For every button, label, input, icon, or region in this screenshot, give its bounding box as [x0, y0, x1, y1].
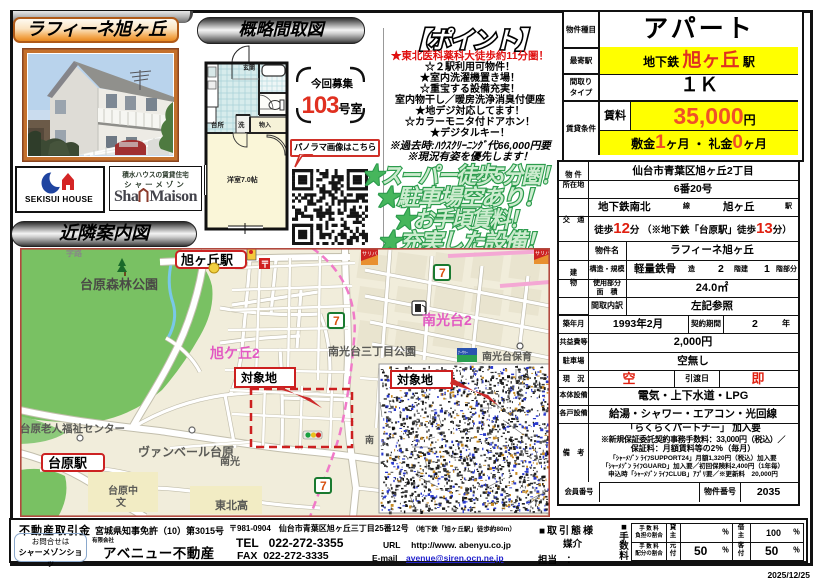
svg-text:台所: 台所: [211, 120, 225, 129]
svg-text:文: 文: [116, 496, 127, 509]
svg-text:台原森林公園: 台原森林公園: [80, 277, 158, 292]
svg-text:7: 7: [333, 314, 340, 328]
svg-text:ﾅｰｻﾘｰ: ﾅｰｻﾘｰ: [458, 350, 468, 355]
svg-text:サリバ: サリバ: [362, 252, 377, 258]
svg-text:南光台三丁目公園: 南光台三丁目公園: [328, 344, 416, 358]
svg-text:旭ヶ丘駅: 旭ヶ丘駅: [180, 253, 234, 268]
svg-text:南光: 南光: [220, 455, 240, 468]
svg-text:7: 7: [439, 266, 446, 280]
svg-text:玄関: 玄関: [243, 64, 255, 72]
svg-text:サリバ: サリバ: [535, 251, 550, 257]
svg-text:物入: 物入: [259, 121, 271, 129]
svg-text:東北高: 東北高: [215, 498, 248, 512]
svg-text:南光台保育: 南光台保育: [482, 350, 532, 363]
svg-text:〒: 〒: [261, 260, 270, 270]
svg-text:対象地: 対象地: [240, 370, 277, 385]
svg-text:洋室7.0帖: 洋室7.0帖: [227, 175, 258, 184]
svg-text:洗: 洗: [238, 120, 245, 129]
svg-text:対象地: 対象地: [396, 372, 433, 387]
svg-text:台原老人福祉センター: 台原老人福祉センター: [20, 422, 125, 435]
svg-text:台原駅: 台原駅: [48, 456, 88, 471]
svg-text:旭ケ丘2: 旭ケ丘2: [209, 345, 260, 361]
svg-text:南光台2: 南光台2: [422, 312, 472, 328]
svg-text:南: 南: [365, 434, 374, 445]
svg-text:SEKISUI HOUSE: SEKISUI HOUSE: [25, 195, 93, 204]
svg-text:台原中: 台原中: [108, 484, 138, 497]
svg-text:7: 7: [320, 479, 327, 493]
